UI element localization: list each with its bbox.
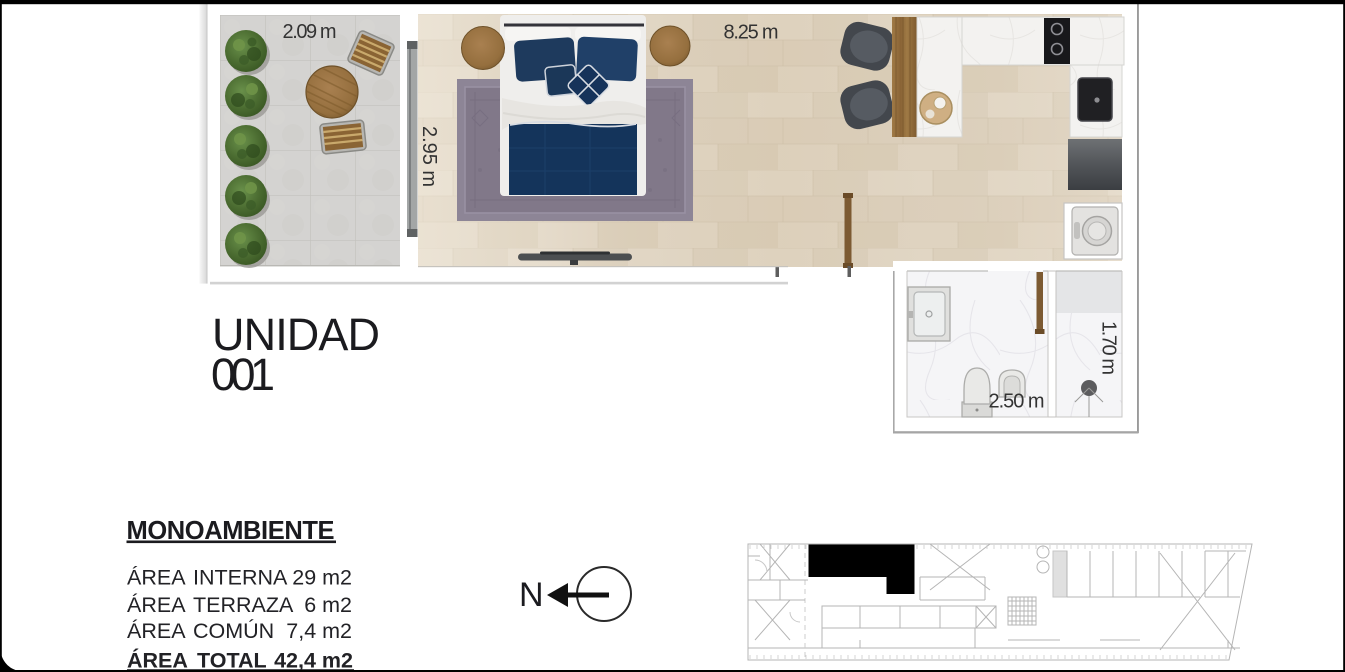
svg-text:2.95 m: 2.95 m — [418, 126, 440, 187]
svg-text:N: N — [519, 576, 544, 614]
svg-text:TERRAZA: TERRAZA — [193, 593, 294, 617]
svg-text:001: 001 — [211, 349, 275, 400]
svg-text:ÁREA: ÁREA — [127, 648, 188, 672]
svg-text:COMÚN: COMÚN — [193, 618, 274, 643]
svg-text:7,4 m2: 7,4 m2 — [286, 619, 352, 643]
svg-text:INTERNA: INTERNA — [193, 566, 288, 590]
svg-text:29 m2: 29 m2 — [292, 566, 352, 590]
svg-text:2.50 m: 2.50 m — [989, 391, 1045, 413]
svg-text:ÁREA: ÁREA — [127, 618, 186, 643]
svg-text:8.25 m: 8.25 m — [724, 22, 779, 44]
svg-text:42,4 m2: 42,4 m2 — [274, 649, 353, 672]
svg-text:6 m2: 6 m2 — [304, 593, 352, 617]
svg-text:1.70 m: 1.70 m — [1098, 321, 1120, 375]
svg-text:ÁREA: ÁREA — [127, 592, 186, 617]
svg-text:TOTAL: TOTAL — [197, 649, 267, 672]
svg-text:ÁREA: ÁREA — [127, 565, 186, 590]
svg-text:2.09 m: 2.09 m — [283, 21, 337, 43]
